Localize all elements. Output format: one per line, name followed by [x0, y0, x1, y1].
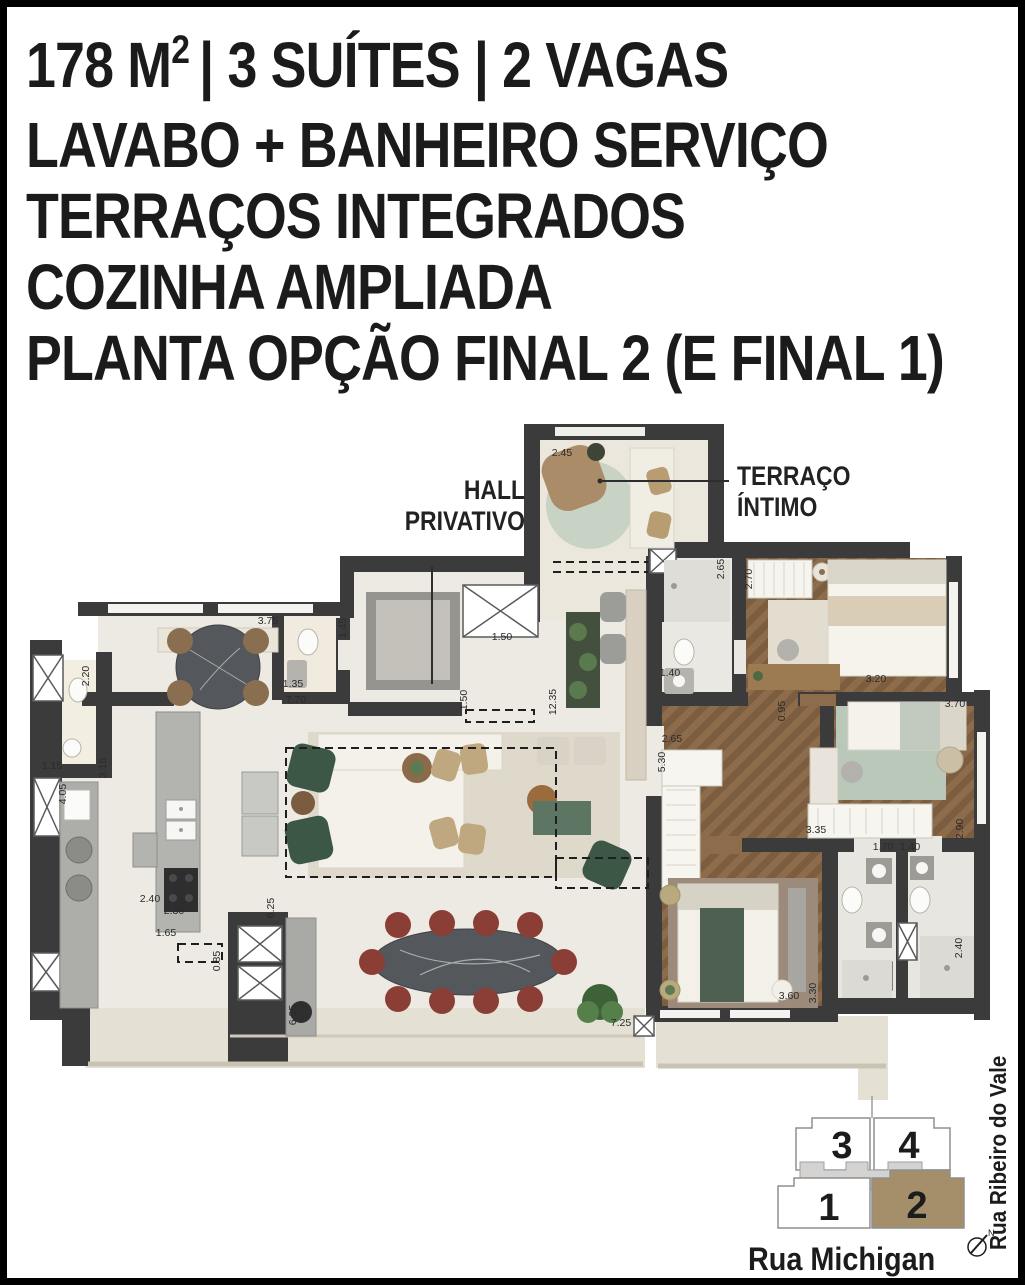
pouf	[537, 737, 569, 765]
dining-table	[373, 929, 563, 995]
dimension-label: 6.95	[287, 1005, 299, 1026]
dimension-label: 7.70	[286, 694, 307, 706]
dryer	[66, 875, 92, 901]
title-line-4: COZINHA AMPLIADA	[26, 252, 944, 323]
dimension-label: 2.65	[715, 559, 727, 580]
marble-coffee-table	[533, 801, 591, 835]
street-label-bottom: Rua Michigan	[748, 1242, 935, 1278]
oven-tower	[242, 772, 278, 814]
dimension-label: 1.45	[337, 618, 349, 639]
dimension-label: 2.65	[662, 733, 683, 745]
wardrobe	[748, 560, 812, 598]
dimension-label: 1.40	[900, 841, 921, 853]
dimension-label: 3.35	[806, 824, 827, 836]
title-line-3: TERRAÇOS INTEGRADOS	[26, 181, 944, 252]
dimension-label: 2.45	[552, 447, 573, 459]
keymap-unit-3-label: 3	[831, 1125, 852, 1167]
dimension-label: 1.15	[42, 760, 63, 772]
dimension-label: 1.40	[660, 667, 681, 679]
plant-pot	[587, 443, 605, 461]
bedside-table	[937, 747, 963, 773]
toilet	[298, 629, 318, 655]
hall-privativo-label: HALL PRIVATIVO	[355, 475, 525, 537]
floor-plan-page: 178 M2| 3 SUÍTES | 2 VAGAS LAVABO + BANH…	[0, 0, 1025, 1285]
dimension-label: 3.20	[866, 673, 887, 685]
dimension-label: 2.70	[743, 569, 755, 590]
title-line-1: 178 M2| 3 SUÍTES | 2 VAGAS	[26, 30, 944, 110]
title-line-5: PLANTA OPÇÃO FINAL 2 (E FINAL 1)	[26, 323, 944, 394]
title-block: 178 M2| 3 SUÍTES | 2 VAGAS LAVABO + BANH…	[26, 30, 1025, 394]
marble-desk	[810, 748, 838, 804]
street-label-right: Rua Ribeiro do Vale	[985, 1056, 1011, 1250]
dimension-label: 2.20	[80, 666, 92, 687]
dimension-label: 4.05	[57, 784, 69, 805]
dimension-label: 3.70	[945, 698, 966, 710]
keymap-unit-4-label: 4	[898, 1125, 919, 1167]
dimension-label: 2.90	[954, 819, 966, 840]
keymap-unit-2-label: 2	[906, 1185, 927, 1227]
dresser	[788, 888, 806, 992]
wardrobe	[808, 804, 932, 838]
dimension-label: 2.40	[140, 893, 161, 905]
dimension-label: 7.25	[611, 1017, 632, 1029]
side-table	[291, 791, 315, 815]
desk-chair	[777, 639, 799, 661]
dimension-label: 3.60	[779, 990, 800, 1002]
green-armchair	[283, 814, 335, 866]
dimension-label: 3.15	[97, 758, 109, 779]
title-line-2: LAVABO + BANHEIRO SERVIÇO	[26, 110, 944, 181]
dimension-label: 1.50	[458, 690, 470, 711]
dimension-label: 12.35	[547, 689, 559, 715]
dimension-label: 1.70	[873, 841, 894, 853]
dimension-label: 3.30	[807, 983, 819, 1004]
terraco-intimo-label: TERRAÇO ÍNTIMO	[737, 461, 882, 523]
fridge	[242, 816, 278, 856]
dimension-label: 1.35	[283, 678, 304, 690]
dimension-label: 2.30	[164, 905, 185, 917]
title-suites-vagas: | 3 SUÍTES | 2 VAGAS	[199, 29, 728, 101]
dimension-label: 2.40	[953, 938, 965, 959]
dimension-label: 0.85	[211, 951, 223, 972]
key-map: 3 4 1 2 N	[778, 1096, 995, 1256]
dimension-label: 6.25	[265, 898, 277, 919]
title-superscript: 2	[171, 28, 189, 72]
title-area-value: 178 M	[26, 29, 171, 101]
washer	[66, 837, 92, 863]
dimension-label: 3.75	[258, 615, 279, 627]
keymap-unit-1-label: 1	[818, 1187, 839, 1229]
bar-counter	[626, 590, 646, 780]
dimension-label: 1.50	[492, 631, 513, 643]
dimension-label: 1.65	[156, 927, 177, 939]
dimension-label: 5.30	[656, 752, 668, 773]
dimension-label: 0.95	[776, 701, 788, 722]
pouf	[574, 737, 606, 765]
